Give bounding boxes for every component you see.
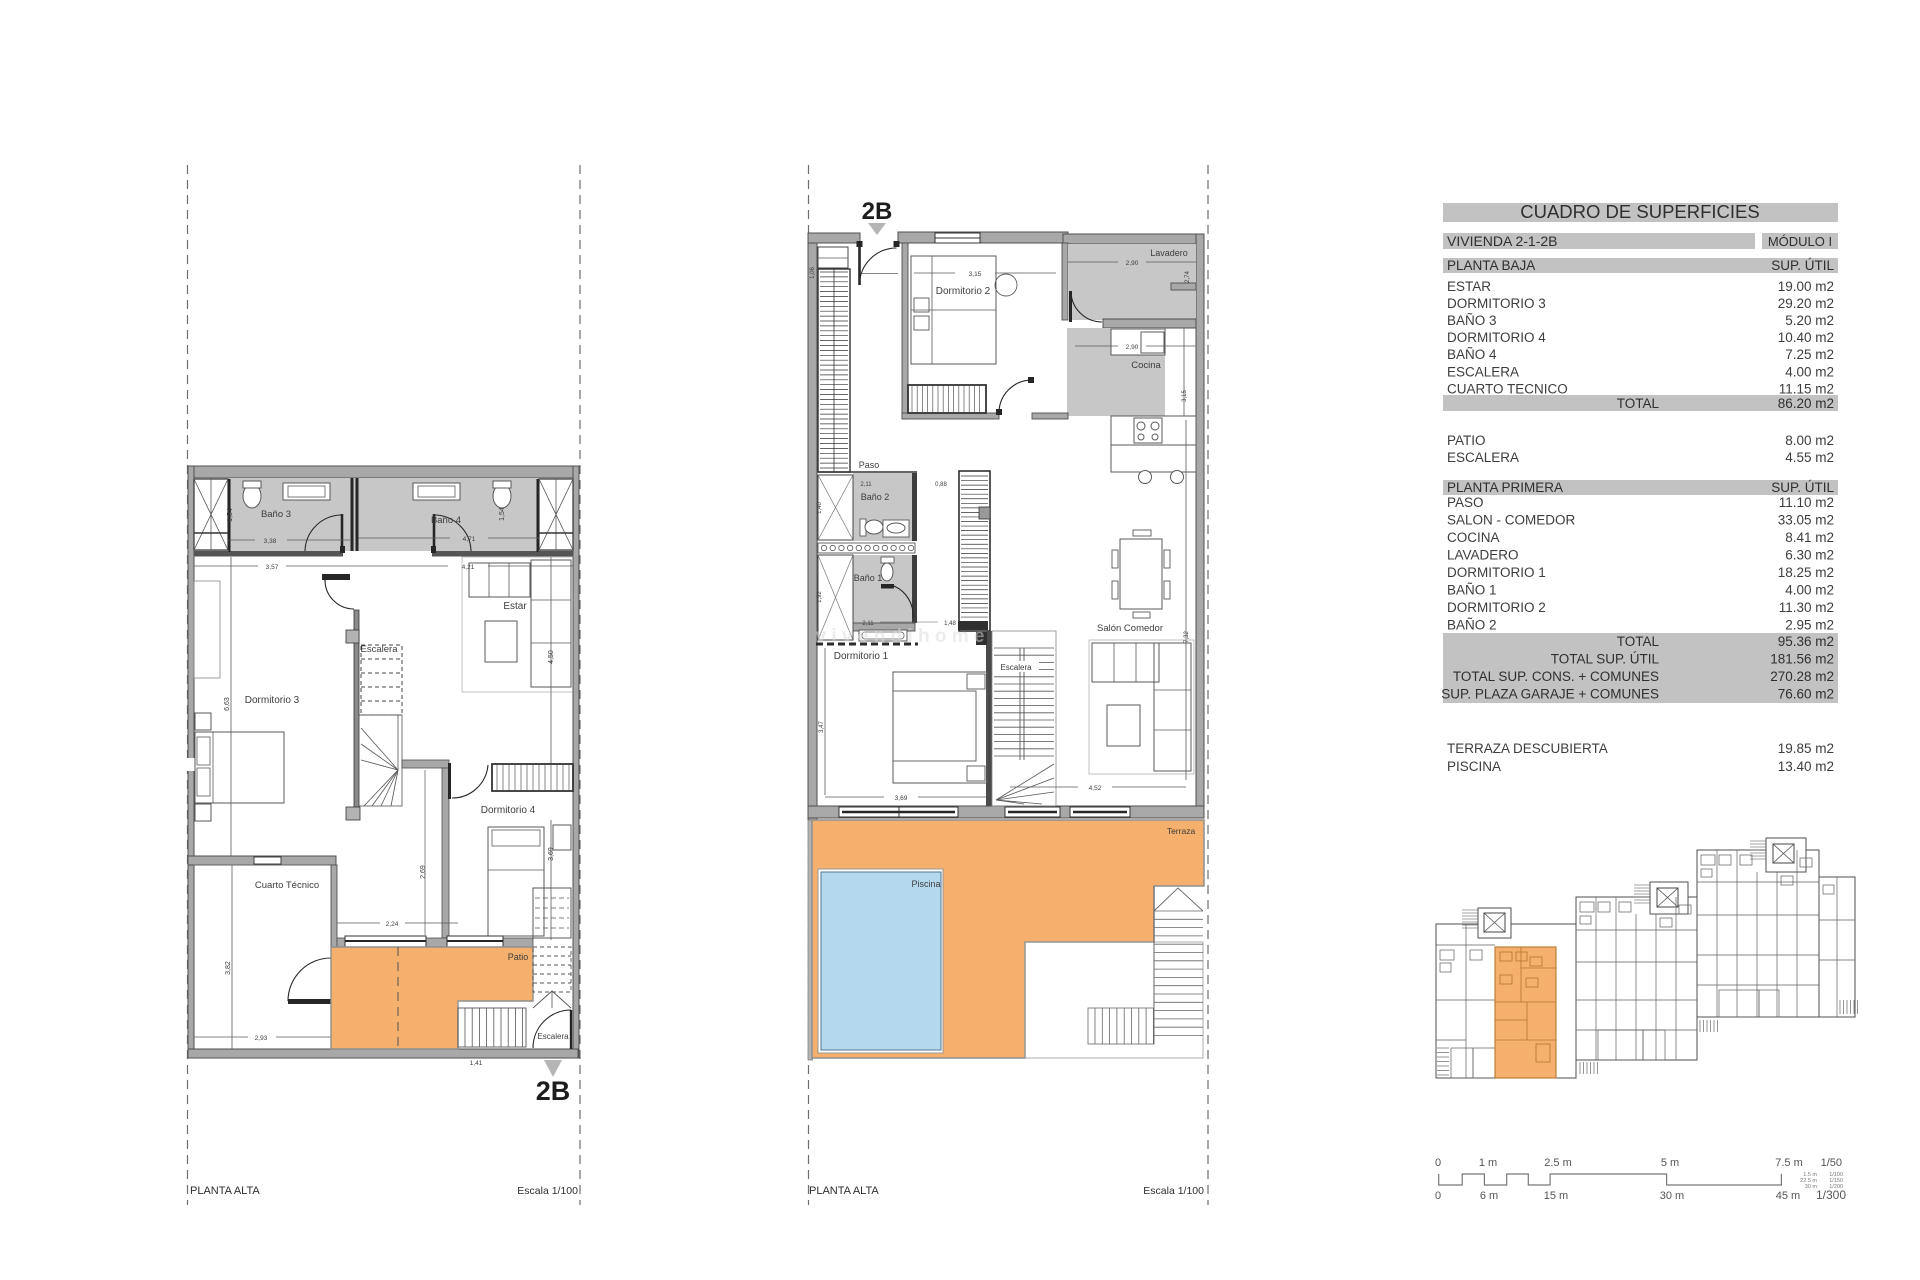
svg-text:15 m: 15 m [1544, 1190, 1568, 1202]
svg-text:95.36 m2: 95.36 m2 [1778, 634, 1834, 649]
svg-text:2,74: 2,74 [1185, 271, 1191, 283]
svg-text:Piscina: Piscina [911, 879, 940, 889]
svg-text:2.5 m: 2.5 m [1544, 1157, 1572, 1169]
svg-text:76.60 m2: 76.60 m2 [1778, 687, 1834, 702]
svg-text:Paso: Paso [859, 460, 880, 470]
svg-text:6 m: 6 m [1480, 1190, 1498, 1202]
svg-text:3,57: 3,57 [266, 564, 279, 571]
svg-text:7.25 m2: 7.25 m2 [1785, 347, 1834, 362]
svg-text:Escala 1/100: Escala 1/100 [1143, 1185, 1204, 1197]
svg-text:Escalera: Escalera [1000, 663, 1032, 672]
svg-text:181.56 m2: 181.56 m2 [1770, 652, 1834, 667]
svg-text:PASO: PASO [1447, 495, 1484, 510]
svg-text:2,11: 2,11 [860, 482, 872, 488]
svg-text:PLANTA PRIMERA: PLANTA PRIMERA [1447, 480, 1563, 495]
svg-text:6.30 m2: 6.30 m2 [1785, 548, 1834, 563]
svg-text:BAÑO 2: BAÑO 2 [1447, 618, 1497, 633]
svg-text:VIVIENDA 2-1-2B: VIVIENDA 2-1-2B [1447, 233, 1558, 249]
svg-text:CUARTO TECNICO: CUARTO TECNICO [1447, 381, 1568, 396]
svg-text:1/50: 1/50 [1821, 1157, 1842, 1169]
svg-text:3,15: 3,15 [1182, 390, 1188, 402]
svg-text:45 m: 45 m [1776, 1190, 1800, 1202]
svg-text:4,50: 4,50 [548, 650, 555, 664]
svg-text:PLANTA BAJA: PLANTA BAJA [1447, 258, 1535, 273]
svg-text:5.20 m2: 5.20 m2 [1785, 313, 1834, 328]
svg-text:3,38: 3,38 [264, 538, 277, 545]
svg-text:DORMITORIO 1: DORMITORIO 1 [1447, 565, 1546, 580]
svg-text:19.00 m2: 19.00 m2 [1778, 279, 1834, 294]
svg-text:0: 0 [1435, 1157, 1441, 1169]
svg-text:Baño 2: Baño 2 [861, 492, 890, 502]
svg-text:Terraza: Terraza [1167, 826, 1196, 836]
svg-text:8.00 m2: 8.00 m2 [1785, 433, 1834, 448]
svg-text:Escalera: Escalera [537, 1032, 569, 1041]
svg-text:0: 0 [1435, 1190, 1441, 1202]
svg-text:TERRAZA DESCUBIERTA: TERRAZA DESCUBIERTA [1447, 741, 1608, 756]
svg-text:3,82: 3,82 [225, 961, 232, 975]
svg-text:11.10 m2: 11.10 m2 [1779, 495, 1834, 510]
svg-text:1,06: 1,06 [810, 267, 816, 279]
svg-text:2B: 2B [862, 198, 893, 225]
svg-text:2,24: 2,24 [386, 921, 399, 928]
svg-text:4,52: 4,52 [1089, 785, 1102, 792]
svg-text:PLANTA ALTA: PLANTA ALTA [190, 1185, 260, 1197]
svg-text:0,88: 0,88 [935, 482, 947, 488]
svg-text:ESCALERA: ESCALERA [1447, 364, 1519, 379]
svg-text:Baño 3: Baño 3 [261, 509, 291, 520]
svg-text:BAÑO 3: BAÑO 3 [1447, 313, 1497, 328]
svg-text:ESCALERA: ESCALERA [1447, 450, 1519, 465]
svg-text:PATIO: PATIO [1447, 433, 1486, 448]
svg-text:7.5 m: 7.5 m [1775, 1157, 1803, 1169]
svg-text:30 m: 30 m [1660, 1190, 1684, 1202]
svg-text:Cuarto Técnico: Cuarto Técnico [255, 880, 319, 891]
svg-text:29.20 m2: 29.20 m2 [1778, 296, 1834, 311]
svg-text:1,40: 1,40 [817, 502, 823, 514]
svg-text:1,54: 1,54 [499, 507, 506, 521]
svg-text:2,90: 2,90 [1126, 344, 1139, 351]
svg-text:30 m: 30 m [1805, 1184, 1818, 1190]
svg-text:19.85 m2: 19.85 m2 [1778, 741, 1834, 756]
svg-text:86.20 m2: 86.20 m2 [1778, 396, 1834, 411]
svg-text:11.30 m2: 11.30 m2 [1779, 600, 1834, 615]
svg-text:4.00 m2: 4.00 m2 [1785, 583, 1834, 598]
svg-text:Lavadero: Lavadero [1150, 248, 1188, 258]
svg-text:11.15 m2: 11.15 m2 [1779, 381, 1834, 396]
svg-text:5 m: 5 m [1661, 1157, 1679, 1169]
svg-text:MÓDULO I: MÓDULO I [1768, 234, 1832, 249]
svg-text:2B: 2B [536, 1076, 571, 1106]
svg-text:7,32: 7,32 [1184, 631, 1190, 643]
svg-text:270.28 m2: 270.28 m2 [1770, 669, 1834, 684]
svg-text:BAÑO 1: BAÑO 1 [1447, 583, 1497, 598]
svg-text:SUP. ÚTIL: SUP. ÚTIL [1771, 480, 1834, 495]
svg-text:2,90: 2,90 [1126, 260, 1139, 267]
svg-text:Dormitorio 3: Dormitorio 3 [245, 695, 300, 706]
svg-text:4,71: 4,71 [463, 536, 476, 543]
svg-text:1,41: 1,41 [470, 1060, 483, 1067]
svg-text:3,47: 3,47 [819, 721, 825, 733]
svg-text:1,92: 1,92 [817, 591, 823, 603]
svg-text:18.25 m2: 18.25 m2 [1778, 565, 1834, 580]
svg-text:DORMITORIO 2: DORMITORIO 2 [1447, 600, 1546, 615]
svg-text:6,63: 6,63 [224, 697, 231, 711]
svg-text:Escalera: Escalera [361, 644, 399, 655]
svg-text:1 m: 1 m [1479, 1157, 1497, 1169]
svg-text:4.00 m2: 4.00 m2 [1785, 364, 1834, 379]
svg-text:DORMITORIO 3: DORMITORIO 3 [1447, 296, 1546, 311]
svg-text:TOTAL SUP. ÚTIL: TOTAL SUP. ÚTIL [1551, 652, 1660, 667]
svg-text:DORMITORIO 4: DORMITORIO 4 [1447, 330, 1546, 345]
svg-text:Dormitorio 4: Dormitorio 4 [481, 805, 536, 816]
svg-text:SUP. PLAZA GARAJE + COMUNES: SUP. PLAZA GARAJE + COMUNES [1441, 687, 1659, 702]
svg-text:v i v e n d i h o m e: v i v e n d i h o m e [816, 626, 985, 647]
svg-text:Baño 4: Baño 4 [431, 515, 461, 526]
svg-text:CUADRO DE SUPERFICIES: CUADRO DE SUPERFICIES [1520, 201, 1760, 222]
svg-text:TOTAL: TOTAL [1617, 396, 1660, 411]
svg-text:Patio: Patio [508, 952, 529, 962]
svg-text:BAÑO 4: BAÑO 4 [1447, 347, 1497, 362]
svg-text:Salón Comedor: Salón Comedor [1097, 623, 1163, 634]
svg-text:PISCINA: PISCINA [1447, 759, 1501, 774]
svg-text:2.95 m2: 2.95 m2 [1785, 618, 1834, 633]
svg-text:2,69: 2,69 [420, 865, 427, 879]
svg-text:3,69: 3,69 [548, 847, 555, 861]
svg-text:Escala 1/100: Escala 1/100 [517, 1185, 578, 1197]
svg-text:Estar: Estar [503, 601, 527, 612]
svg-text:4,21: 4,21 [462, 564, 475, 571]
svg-text:Dormitorio 1: Dormitorio 1 [834, 651, 889, 662]
svg-text:PLANTA ALTA: PLANTA ALTA [809, 1185, 879, 1197]
svg-text:SALON - COMEDOR: SALON - COMEDOR [1447, 513, 1576, 528]
svg-text:TOTAL SUP. CONS. + COMUNES: TOTAL SUP. CONS. + COMUNES [1453, 669, 1659, 684]
svg-text:1/300: 1/300 [1816, 1188, 1846, 1202]
svg-text:3,69: 3,69 [895, 795, 908, 802]
svg-text:4.55 m2: 4.55 m2 [1785, 450, 1834, 465]
svg-text:SUP. ÚTIL: SUP. ÚTIL [1771, 258, 1834, 273]
svg-text:Cocina: Cocina [1131, 360, 1161, 371]
svg-text:1/200: 1/200 [1829, 1184, 1843, 1190]
svg-text:Dormitorio 2: Dormitorio 2 [936, 286, 991, 297]
svg-text:3,15: 3,15 [969, 271, 982, 278]
svg-text:10.40 m2: 10.40 m2 [1778, 330, 1834, 345]
svg-text:2,93: 2,93 [255, 1035, 268, 1042]
svg-text:LAVADERO: LAVADERO [1447, 548, 1519, 563]
svg-text:33.05 m2: 33.05 m2 [1778, 513, 1834, 528]
svg-text:Baño 1: Baño 1 [854, 573, 883, 583]
svg-text:8.41 m2: 8.41 m2 [1785, 530, 1834, 545]
svg-text:1,54: 1,54 [227, 508, 234, 522]
svg-text:COCINA: COCINA [1447, 530, 1500, 545]
svg-text:13.40 m2: 13.40 m2 [1778, 759, 1834, 774]
svg-text:ESTAR: ESTAR [1447, 279, 1491, 294]
svg-text:TOTAL: TOTAL [1617, 634, 1660, 649]
